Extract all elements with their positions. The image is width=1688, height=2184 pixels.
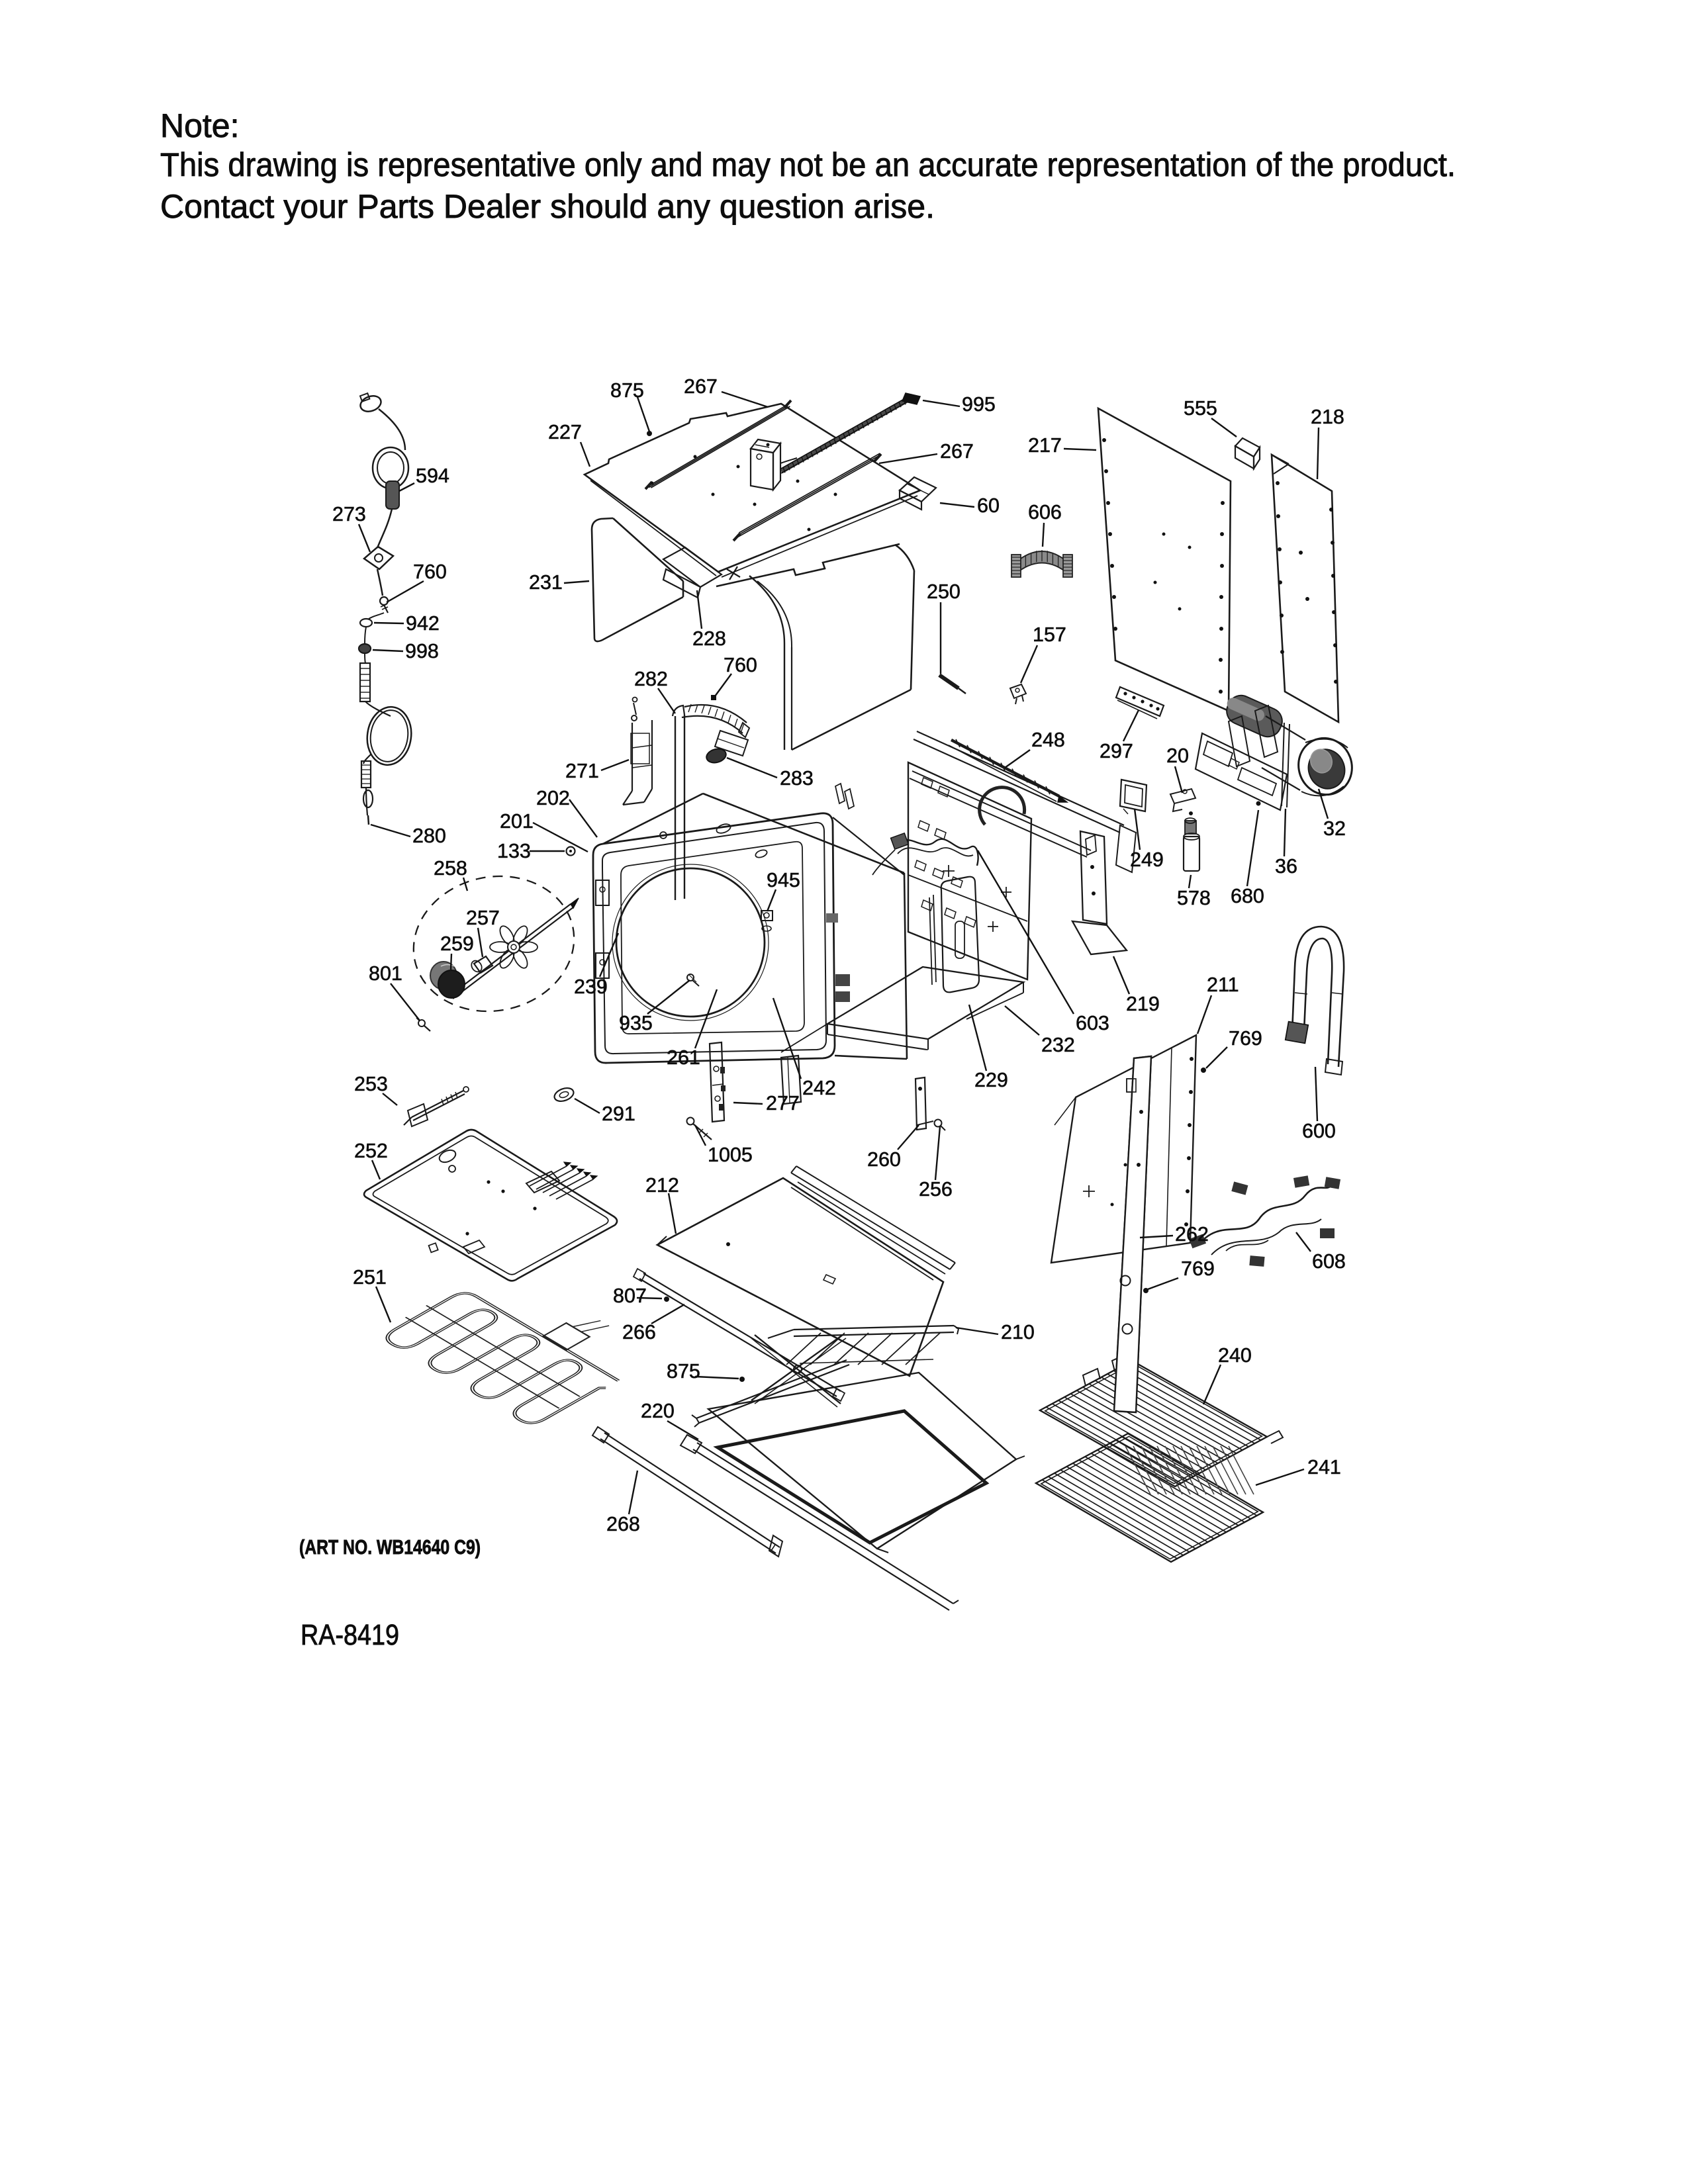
svg-text:262: 262 [1175,1223,1209,1246]
svg-text:1005: 1005 [708,1144,753,1166]
svg-text:875: 875 [667,1360,700,1383]
svg-text:239: 239 [574,976,608,998]
svg-text:157: 157 [1033,623,1066,646]
svg-text:212: 212 [645,1174,679,1197]
svg-text:769: 769 [1229,1027,1262,1050]
svg-text:217: 217 [1028,434,1062,457]
svg-text:258: 258 [434,857,467,880]
svg-text:229: 229 [974,1069,1008,1091]
svg-text:Contact your Parts Dealer shou: Contact your Parts Dealer should any que… [160,188,935,225]
svg-text:260: 260 [867,1148,901,1171]
svg-text:228: 228 [692,627,726,650]
svg-text:20: 20 [1166,745,1189,767]
svg-text:606: 606 [1028,501,1062,523]
svg-text:291: 291 [602,1103,635,1125]
svg-text:202: 202 [536,787,570,809]
svg-text:283: 283 [780,767,814,790]
svg-text:133: 133 [497,840,531,862]
svg-text:253: 253 [354,1073,388,1095]
svg-text:268: 268 [606,1513,640,1535]
svg-text:242: 242 [802,1077,836,1099]
svg-text:801: 801 [369,962,402,985]
svg-text:282: 282 [634,668,668,690]
svg-text:249: 249 [1130,848,1164,871]
svg-text:218: 218 [1311,406,1344,428]
svg-text:241: 241 [1307,1456,1341,1479]
svg-text:594: 594 [416,465,449,487]
svg-text:273: 273 [332,503,366,525]
svg-text:220: 220 [641,1400,675,1422]
svg-text:231: 231 [529,571,563,594]
svg-text:935: 935 [619,1012,653,1034]
svg-text:266: 266 [622,1321,656,1343]
svg-text:This drawing is representative: This drawing is representative only and … [160,146,1456,183]
svg-text:600: 600 [1302,1120,1336,1142]
svg-text:Note:: Note: [160,107,240,144]
svg-text:267: 267 [684,375,718,398]
svg-text:201: 201 [500,810,534,833]
svg-text:603: 603 [1076,1012,1109,1034]
svg-text:578: 578 [1177,887,1211,909]
svg-text:760: 760 [413,561,447,583]
svg-text:210: 210 [1001,1321,1035,1343]
svg-text:257: 257 [466,907,500,929]
svg-text:760: 760 [724,654,757,676]
svg-text:248: 248 [1031,729,1065,751]
svg-text:259: 259 [440,933,474,955]
svg-text:240: 240 [1218,1344,1252,1367]
svg-text:(ART NO. WB14640 C9): (ART NO. WB14640 C9) [299,1535,481,1559]
svg-text:998: 998 [405,640,439,662]
svg-text:555: 555 [1184,397,1217,420]
svg-text:36: 36 [1275,855,1297,878]
svg-text:60: 60 [977,494,1000,517]
svg-text:945: 945 [767,869,800,891]
svg-text:297: 297 [1100,740,1133,762]
svg-text:252: 252 [354,1140,388,1162]
svg-text:942: 942 [406,612,440,635]
svg-text:608: 608 [1312,1250,1346,1273]
svg-text:261: 261 [667,1046,700,1069]
svg-text:211: 211 [1207,974,1239,996]
svg-text:251: 251 [353,1266,387,1289]
svg-text:RA-8419: RA-8419 [301,1619,399,1651]
svg-text:807: 807 [613,1285,647,1307]
svg-text:267: 267 [940,440,974,463]
svg-text:32: 32 [1323,817,1346,840]
svg-text:227: 227 [548,421,582,443]
svg-text:680: 680 [1231,885,1264,907]
svg-text:280: 280 [412,825,446,847]
svg-text:875: 875 [610,379,644,402]
svg-text:271: 271 [565,760,599,782]
svg-text:250: 250 [927,580,961,603]
svg-text:995: 995 [962,393,996,416]
svg-text:219: 219 [1126,993,1160,1015]
svg-text:769: 769 [1181,1257,1215,1280]
svg-text:277: 277 [766,1092,800,1115]
svg-text:232: 232 [1041,1034,1075,1056]
svg-text:256: 256 [919,1178,953,1201]
